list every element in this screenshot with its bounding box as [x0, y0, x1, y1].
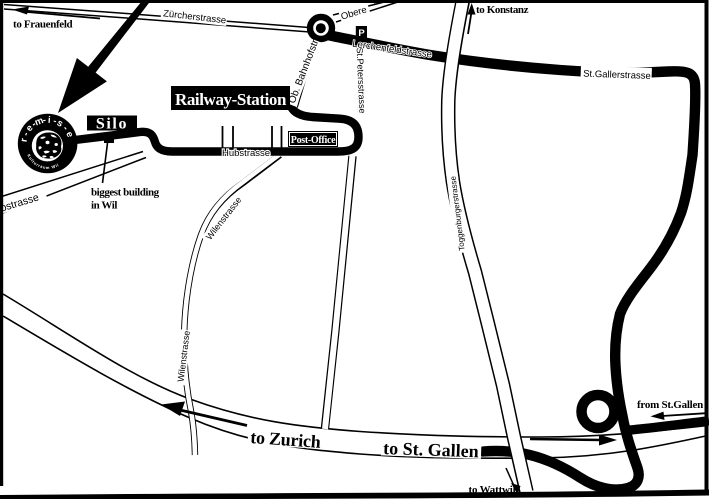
svg-text:biggest building: biggest building [91, 187, 160, 199]
svg-text:Silo: Silo [96, 116, 128, 133]
svg-text:St.Gallerstrasse: St.Gallerstrasse [583, 69, 651, 82]
svg-text:Hubstrasse: Hubstrasse [222, 148, 270, 159]
svg-text:to St. Gallen: to St. Gallen [383, 438, 479, 461]
svg-text:to Konstanz: to Konstanz [476, 4, 529, 16]
svg-text:to Frauenfeld: to Frauenfeld [13, 19, 73, 31]
svg-text:in Wil: in Wil [91, 200, 117, 212]
svg-text:Railway-Station: Railway-Station [175, 90, 287, 109]
svg-text:P: P [358, 28, 365, 39]
svg-text:Post-Office: Post-Office [291, 135, 336, 146]
svg-text:from St.Gallen: from St.Gallen [637, 399, 703, 411]
